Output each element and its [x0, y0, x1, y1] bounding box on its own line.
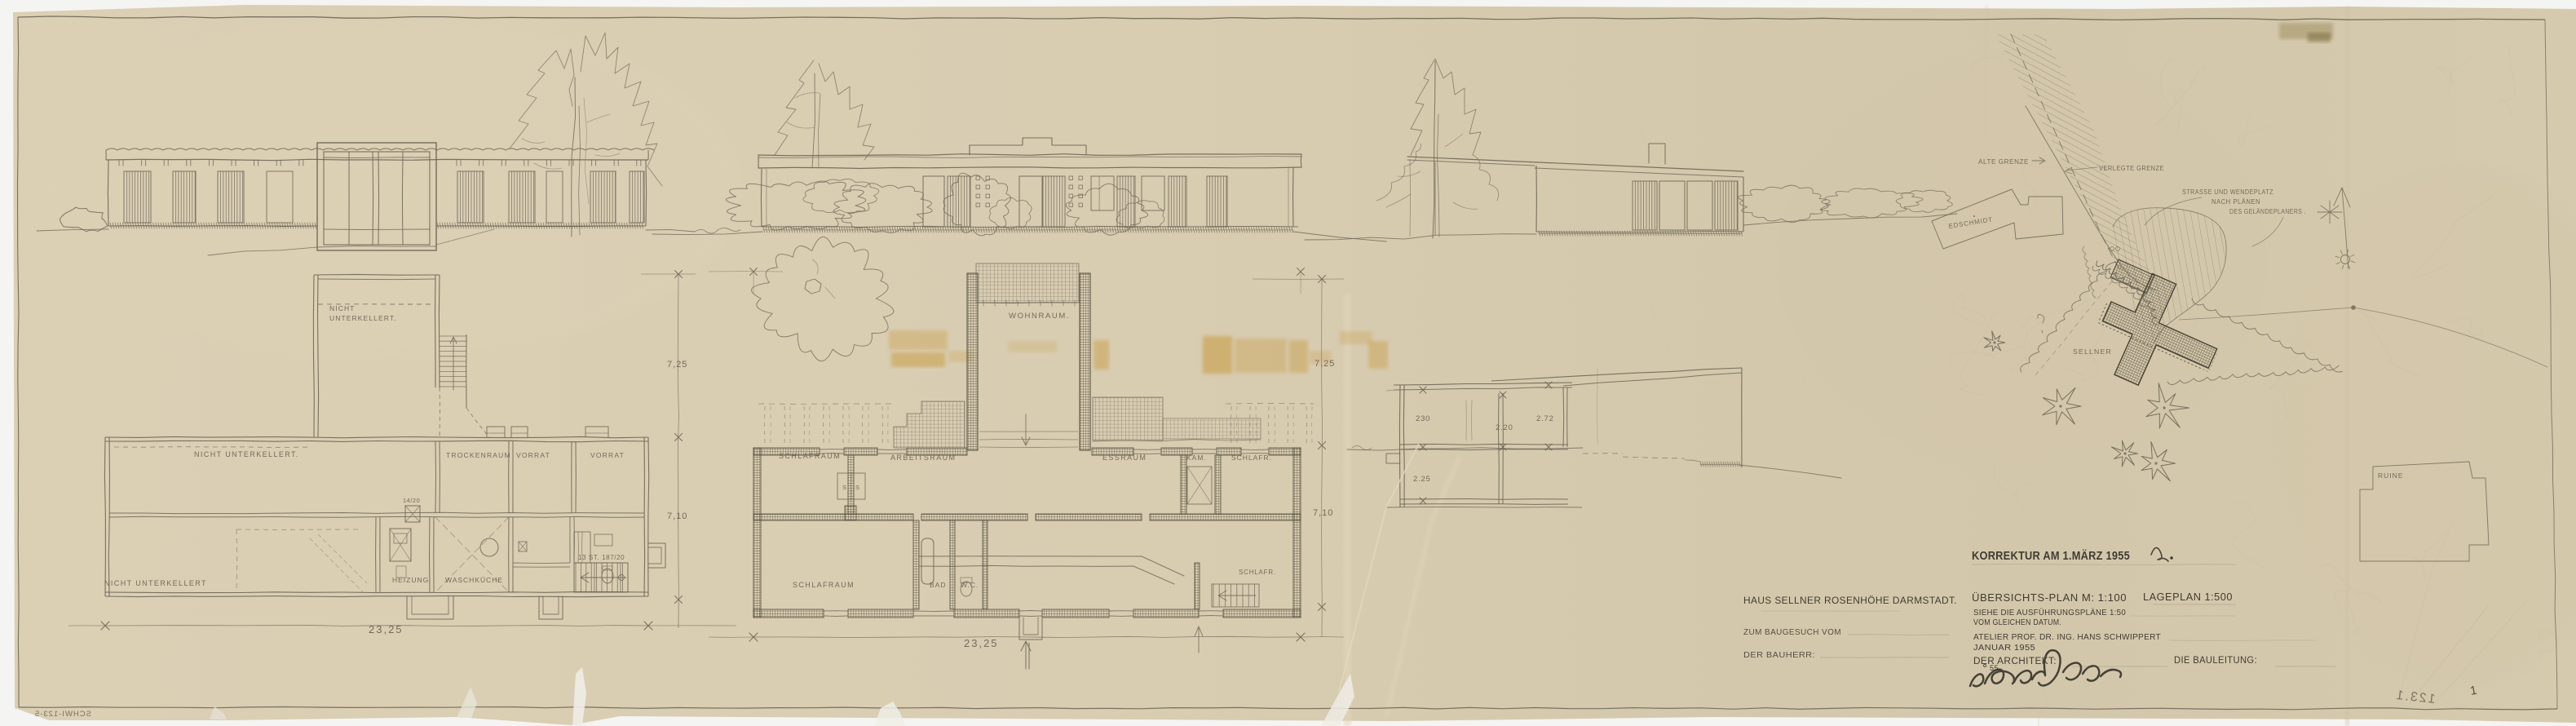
svg-text:KORREKTUR AM 1.MÄRZ 1955: KORREKTUR AM 1.MÄRZ 1955 — [1972, 549, 2130, 563]
svg-text:UNTERKELLERT.: UNTERKELLERT. — [329, 314, 397, 322]
svg-text:SIEHE DIE AUSFÜHRUNGSPLÄNE 1:5: SIEHE DIE AUSFÜHRUNGSPLÄNE 1:50 — [1973, 608, 2126, 618]
svg-text:14/20: 14/20 — [403, 497, 420, 504]
svg-text:NICHT: NICHT — [329, 304, 355, 312]
svg-text:SCHLAFRAUM: SCHLAFRAUM — [779, 452, 841, 460]
svg-text:DER BAUHERR:: DER BAUHERR: — [1743, 651, 1815, 660]
svg-text:NICHT UNTERKELLERT: NICHT UNTERKELLERT — [104, 579, 207, 587]
svg-text:TROCKENRAUM: TROCKENRAUM — [446, 451, 511, 459]
svg-text:SCHLAFR.: SCHLAFR. — [1231, 454, 1272, 462]
svg-text:S: S — [842, 484, 846, 491]
svg-text:WOHNRAUM.: WOHNRAUM. — [1009, 312, 1070, 321]
svg-text:DIE BAULEITUNG:: DIE BAULEITUNG: — [2174, 656, 2257, 666]
svg-text:7,25: 7,25 — [1315, 359, 1335, 369]
svg-text:7,25: 7,25 — [667, 360, 687, 370]
svg-text:HAUS SELLNER ROSENHÖHE DARMSTA: HAUS SELLNER ROSENHÖHE DARMSTADT. — [1743, 595, 1957, 606]
svg-text:JANUAR 1955: JANUAR 1955 — [1973, 644, 2035, 653]
svg-text:RUINE: RUINE — [2378, 471, 2403, 480]
svg-text:NACH PLÄNEN: NACH PLÄNEN — [2211, 198, 2260, 206]
svg-text:VORRAT: VORRAT — [516, 451, 550, 459]
svg-text:VERLEGTE GRENZE: VERLEGTE GRENZE — [2099, 164, 2164, 172]
svg-text:ESSRAUM: ESSRAUM — [1102, 454, 1147, 462]
svg-text:VOM GLEICHEN DATUM.: VOM GLEICHEN DATUM. — [1973, 618, 2061, 627]
svg-text:ATELIER PROF. DR. ING. HANS SC: ATELIER PROF. DR. ING. HANS SCHWIPPERT — [1973, 633, 2161, 642]
svg-text:2.72: 2.72 — [1536, 414, 1554, 423]
svg-text:W.C.: W.C. — [961, 581, 979, 589]
svg-text:STRASSE UND WENDEPLATZ: STRASSE UND WENDEPLATZ — [2182, 188, 2273, 196]
svg-text:7,10: 7,10 — [667, 511, 687, 521]
svg-text:SCHLAFR.: SCHLAFR. — [1239, 569, 1276, 576]
svg-text:NICHT UNTERKELLERT.: NICHT UNTERKELLERT. — [194, 450, 299, 458]
svg-text:13 ST. 187/20: 13 ST. 187/20 — [578, 554, 625, 561]
svg-text:7,10: 7,10 — [1313, 508, 1333, 518]
svg-text:SCHLAFRAUM: SCHLAFRAUM — [793, 581, 855, 589]
svg-text:230: 230 — [1416, 414, 1430, 423]
svg-text:23,25: 23,25 — [369, 623, 404, 635]
svg-text:23,25: 23,25 — [964, 637, 999, 649]
svg-text:2.25: 2.25 — [1413, 475, 1431, 484]
svg-text:BAD: BAD — [930, 581, 946, 589]
svg-text:ÜBERSICHTS-PLAN M: 1:100: ÜBERSICHTS-PLAN M: 1:100 — [1972, 592, 2127, 604]
svg-text:LAGEPLAN 1:500: LAGEPLAN 1:500 — [2143, 591, 2233, 603]
svg-text:WASCHKÜCHE: WASCHKÜCHE — [445, 576, 503, 584]
svg-text:DES GELÄNDEPLANERS .: DES GELÄNDEPLANERS . — [2229, 208, 2306, 215]
svg-text:ZUM BAUGESUCH VOM: ZUM BAUGESUCH VOM — [1743, 628, 1841, 637]
svg-text:S: S — [855, 484, 859, 491]
svg-text:HEIZUNG: HEIZUNG — [392, 576, 429, 584]
svg-text:SELLNER: SELLNER — [2073, 348, 2112, 356]
svg-text:SCHWI-123-5: SCHWI-123-5 — [34, 710, 91, 719]
svg-text:2.20: 2.20 — [1496, 423, 1513, 432]
svg-text:VORRAT: VORRAT — [590, 451, 625, 459]
svg-text:ARBEITSRAUM: ARBEITSRAUM — [890, 454, 956, 462]
svg-text:ALTE GRENZE: ALTE GRENZE — [1978, 157, 2029, 166]
svg-text:KAM.: KAM. — [1186, 454, 1207, 462]
